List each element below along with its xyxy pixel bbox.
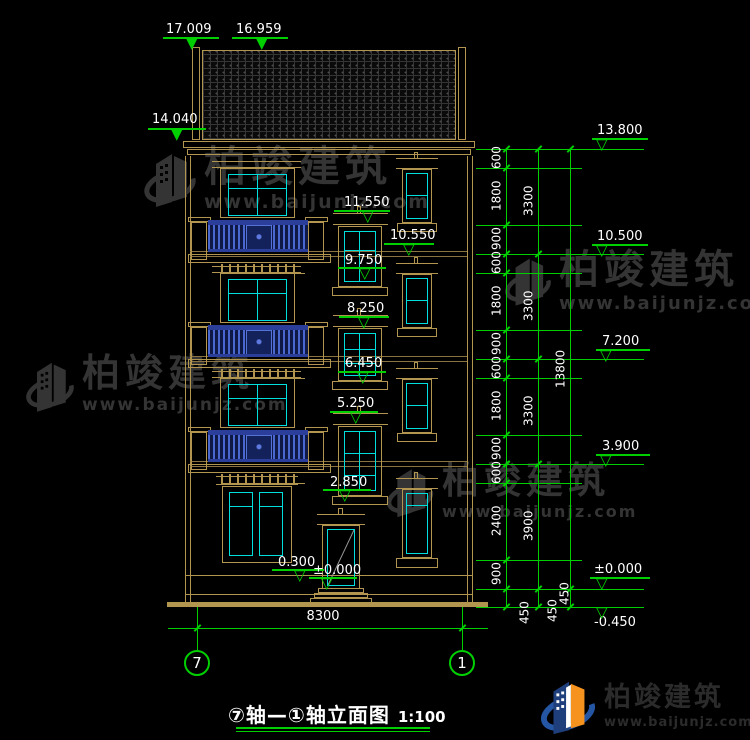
window-transom	[228, 398, 287, 399]
drawing-geometry: 6001800900600180090060018009006002400900…	[0, 0, 750, 740]
level-triangle-icon: ▽	[350, 412, 362, 423]
stair-window-transom	[344, 453, 376, 454]
level-triangle-icon: ▽	[357, 372, 369, 383]
narrow-window-transom	[406, 505, 428, 506]
narrow-window-sill	[397, 328, 437, 337]
narrow-window-sill	[397, 433, 437, 442]
level-triangle-icon: ▽	[403, 244, 415, 255]
title-text: ⑦轴—①轴立面图	[228, 703, 390, 727]
level-triangle-icon: ▼	[256, 38, 268, 49]
window-transom	[259, 506, 283, 507]
cornice-band	[187, 149, 471, 155]
baijun-logo-color-icon	[538, 676, 598, 736]
head-finial	[414, 472, 418, 479]
level-underline	[309, 577, 357, 579]
title-underline	[236, 727, 430, 729]
stair-window-transom	[344, 349, 376, 350]
head-finial	[414, 152, 418, 159]
narrow-window-glass	[406, 493, 428, 554]
balcony-ornament-panel	[246, 225, 272, 251]
chain-dimension-label: 13800	[554, 330, 567, 408]
chain-dimension-label: 1800	[490, 273, 503, 329]
chain-dimension-label: 3300	[522, 173, 535, 229]
wall-right	[472, 156, 473, 602]
window-head	[216, 476, 298, 485]
axis-bubble-7: 7	[184, 650, 210, 676]
title-underline	[236, 731, 430, 732]
narrow-window-transom	[406, 300, 428, 301]
narrow-window-transom	[406, 195, 428, 196]
level-triangle-icon: ▽	[339, 490, 351, 501]
level-triangle-icon: ▽	[596, 607, 608, 618]
balcony-rail-bottom	[208, 354, 308, 357]
wall-left	[185, 156, 186, 602]
chain-dimension-label: 600	[490, 453, 503, 493]
window-head	[212, 371, 301, 378]
chain-dimension-label: 3300	[522, 383, 535, 439]
window-mullion	[257, 174, 258, 216]
level-triangle-icon: ▽	[596, 578, 608, 589]
head-finial	[338, 508, 343, 515]
window-mullion	[257, 384, 258, 426]
elevation-drawing-canvas: 柏竣建筑 www.baijunjz.com 柏竣建筑 www.baijunjz.…	[0, 0, 750, 740]
company-logo-url: www.baijunjz.com	[604, 716, 750, 729]
chain-dimension-label: 450	[558, 574, 571, 614]
head-finial	[414, 257, 418, 264]
window-head	[212, 266, 301, 273]
level-triangle-icon: ▼	[171, 129, 183, 140]
axis-bubble-1: 1	[449, 650, 475, 676]
balcony-rail-bottom	[208, 459, 308, 462]
chain-dimension-label: 1800	[490, 378, 503, 434]
chain-dimension-label: 1800	[490, 168, 503, 224]
balcony-ornament-panel	[246, 330, 272, 356]
narrow-window-head	[396, 368, 438, 379]
chain-dimension-label: 900	[490, 554, 503, 594]
narrow-window-glass	[406, 383, 428, 429]
door-head	[317, 514, 365, 525]
roof-post-right	[458, 47, 466, 140]
window-mullion	[257, 279, 258, 321]
roof-tile-hatch	[202, 50, 456, 140]
level-triangle-icon: ▽	[596, 245, 608, 256]
chain-dimension-label: 3900	[522, 498, 535, 554]
dimension-chain-line	[538, 149, 539, 607]
overall-width-dimension: 8300	[288, 610, 358, 624]
balcony-slab	[188, 254, 331, 263]
window-head	[212, 161, 301, 168]
drawing-title: ⑦轴—①轴立面图1:100	[228, 699, 446, 728]
stair-window-head	[333, 213, 388, 225]
level-triangle-icon: ▽	[600, 350, 612, 361]
narrow-window-transom	[406, 405, 428, 406]
narrow-window-sill	[396, 558, 438, 568]
wall-right-inner	[467, 156, 468, 602]
title-scale: 1:100	[398, 708, 446, 726]
level-triangle-icon: ▽	[596, 139, 608, 150]
head-finial	[414, 362, 418, 369]
narrow-window-head	[396, 478, 438, 489]
level-triangle-icon: ▽	[358, 317, 370, 328]
window-transom	[228, 188, 287, 189]
balcony-slab	[188, 359, 331, 368]
company-logo-text-block: 柏竣建筑 www.baijunjz.com	[604, 684, 750, 729]
company-logo: 柏竣建筑 www.baijunjz.com	[538, 676, 750, 736]
window-glass	[259, 492, 283, 556]
balcony-slab	[188, 464, 331, 473]
narrow-window-head	[396, 158, 438, 169]
level-triangle-icon: ▽	[359, 268, 371, 279]
narrow-window-glass	[406, 278, 428, 324]
narrow-window-head	[396, 263, 438, 274]
stair-window-sill	[332, 287, 388, 296]
chain-dimension-label: 3300	[522, 278, 535, 334]
stair-window-transom	[344, 250, 376, 251]
bottom-dimension-line	[168, 628, 488, 629]
level-triangle-icon: ▽	[294, 570, 306, 581]
level-triangle-icon: ▽	[600, 455, 612, 466]
door-step	[310, 598, 372, 603]
eave-band	[183, 141, 475, 148]
narrow-window-glass	[406, 173, 428, 219]
chain-dimension-label: 2400	[490, 493, 503, 549]
window-transom	[228, 293, 287, 294]
window-transom	[229, 506, 253, 507]
dimension-chain-line	[570, 149, 571, 607]
chain-dimension-label: 450	[518, 593, 531, 633]
balcony-rail-bottom	[208, 249, 308, 252]
level-triangle-icon: ▽	[362, 211, 374, 222]
window-glass	[229, 492, 253, 556]
balcony-ornament-panel	[246, 435, 272, 461]
company-logo-name: 柏竣建筑	[604, 684, 750, 711]
level-triangle-icon: ▼	[186, 38, 198, 49]
level-triangle-icon: ▽	[321, 578, 333, 589]
